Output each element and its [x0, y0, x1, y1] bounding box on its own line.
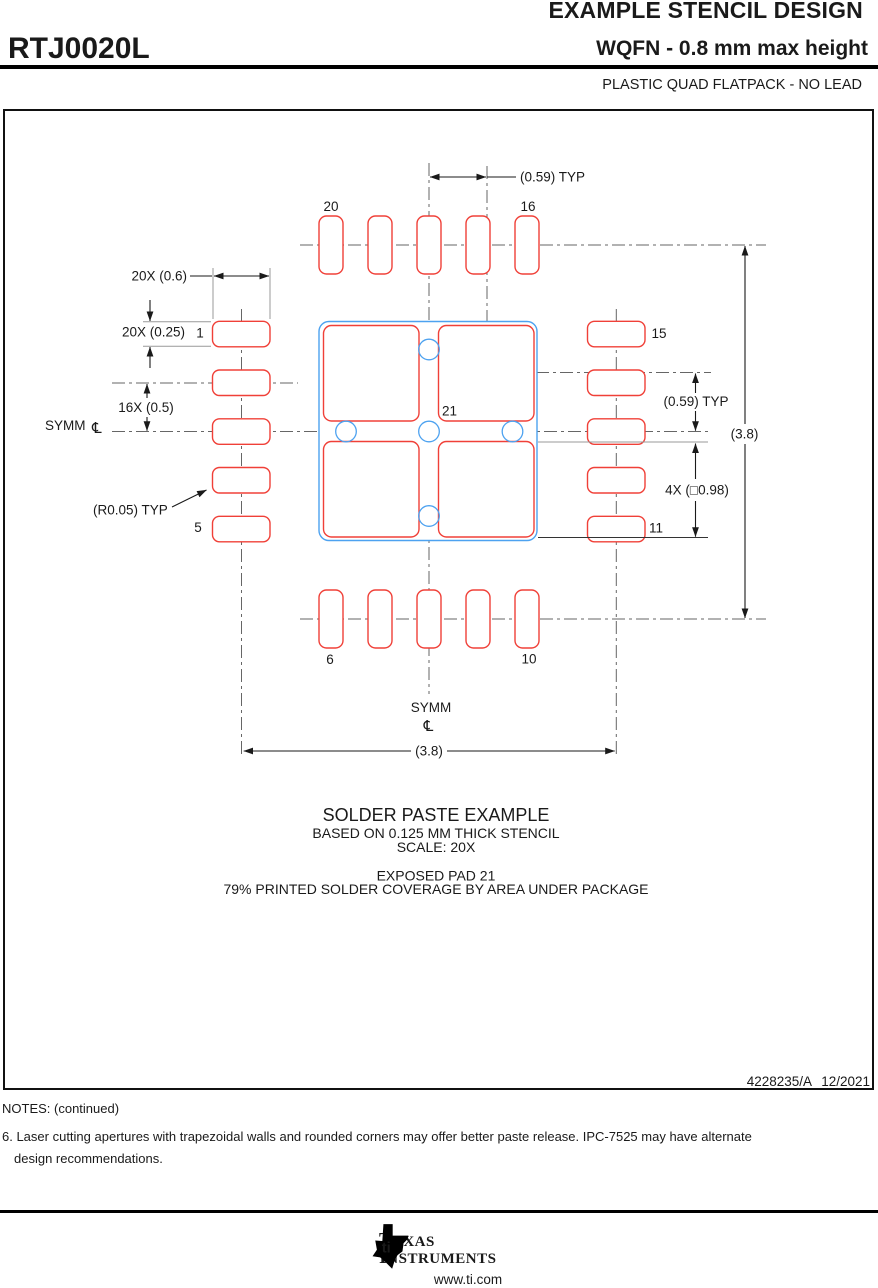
pad-number-16: 16 [520, 199, 535, 214]
pad-number-15: 15 [651, 326, 666, 341]
notes-heading: NOTES: (continued) [2, 1101, 119, 1116]
dim-paste-square-label: 4X (□0.98) [665, 483, 729, 498]
caption-line5: 79% PRINTED SOLDER COVERAGE BY AREA UNDE… [223, 881, 648, 897]
stencil-drawing: (0.59) TYP 20X (0.6) 20X (0.25) 16X (0.5… [0, 0, 878, 1288]
caption-title: SOLDER PASTE EXAMPLE [323, 805, 550, 825]
dim-pad-width-label: 20X (0.6) [131, 269, 187, 284]
revision-date: 12/2021 [821, 1074, 870, 1089]
pad-number-20: 20 [323, 199, 338, 214]
dim-pad-height-label: 20X (0.25) [122, 325, 185, 340]
symm-bottom-label: SYMM [411, 700, 452, 715]
exposed-pad-21 [319, 322, 537, 541]
centerline-symbol-bottom: ℄ [423, 718, 434, 735]
dim-overall-height-label: (3.8) [731, 427, 759, 442]
centerline-symbol-left: ℄ [91, 420, 102, 437]
pad-number-6: 6 [326, 652, 334, 667]
pad-number-5: 5 [194, 520, 202, 535]
note-6-line1: 6. Laser cutting apertures with trapezoi… [2, 1129, 752, 1144]
ti-logo: ti TEXAS INSTRUMENTS [372, 1224, 496, 1267]
ti-url: www.ti.com [398, 1272, 538, 1287]
dim-overall-width-label: (3.8) [415, 744, 443, 759]
texas-map-icon: ti [372, 1224, 409, 1270]
ti-monogram: ti [382, 1240, 391, 1256]
caption-line3: SCALE: 20X [397, 839, 476, 855]
pad-number-11: 11 [649, 521, 663, 536]
corner-radius-label: (R0.05) TYP [93, 503, 168, 518]
pad-number-1: 1 [196, 326, 204, 341]
note-6: 6. Laser cutting apertures with trapezoi… [2, 1126, 752, 1170]
footer-rule [0, 1210, 878, 1213]
document-number: 4228235/A [747, 1074, 812, 1089]
symm-left-label: SYMM [45, 418, 86, 433]
dim-top-pitch-label: (0.59) TYP [520, 170, 585, 185]
note-6-line2: design recommendations. [2, 1148, 752, 1170]
pad-number-21: 21 [442, 404, 457, 419]
dim-pad-pitch-label: 16X (0.5) [118, 400, 174, 415]
dim-right-pitch-label: (0.59) TYP [663, 394, 728, 409]
pad-number-10: 10 [521, 652, 536, 667]
